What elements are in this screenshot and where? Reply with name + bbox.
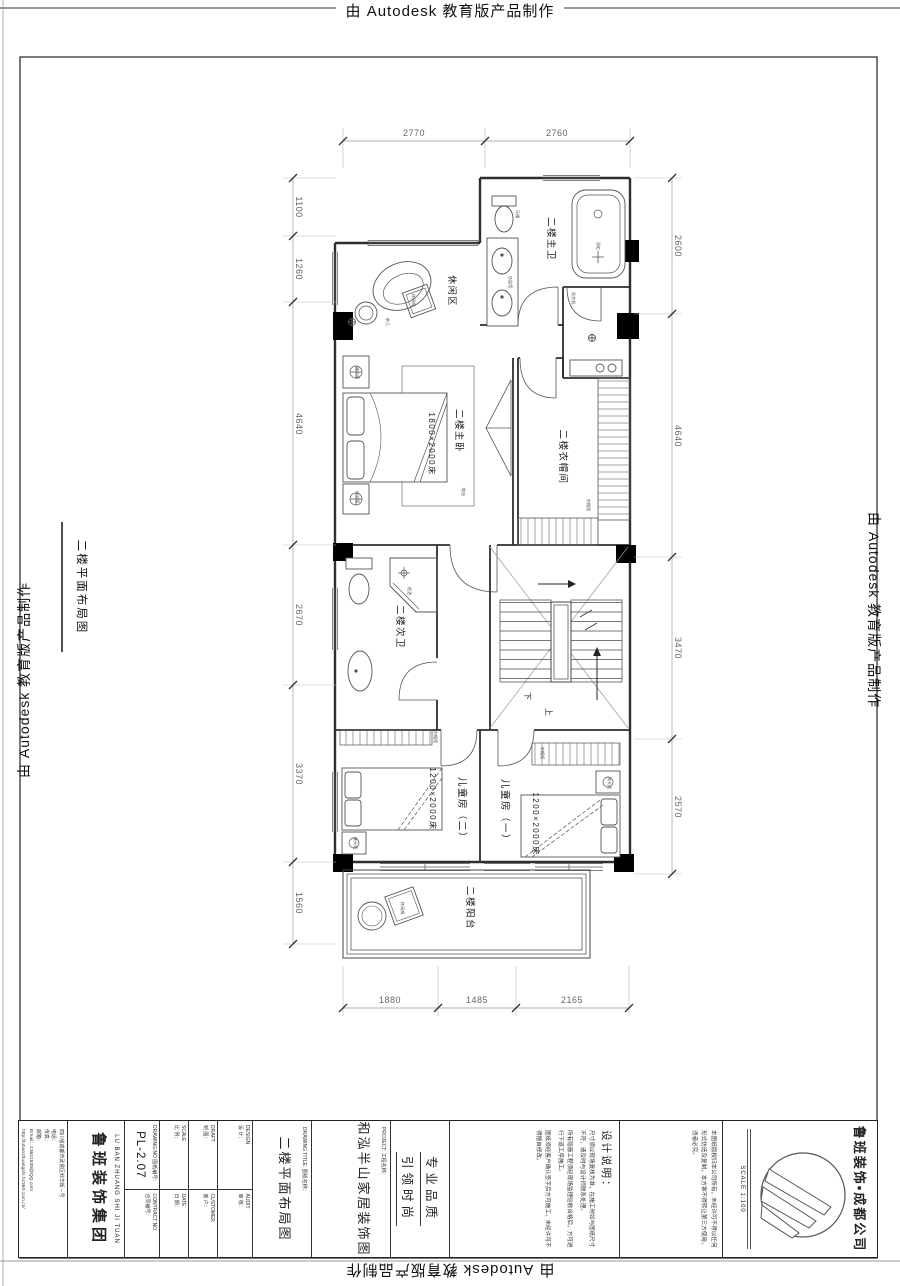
svg-text:床头柜: 床头柜	[354, 491, 361, 504]
draft-cell: DRAFT制 图：	[189, 1121, 217, 1190]
second-bath-fixtures	[346, 558, 437, 691]
svg-text:3470: 3470	[673, 637, 683, 659]
branch-name: 鲁班装饰•成都公司	[851, 1121, 870, 1257]
slogan-line-2: 引领时尚	[396, 1152, 418, 1226]
svg-text:洗衣机: 洗衣机	[570, 292, 577, 305]
svg-text:1880: 1880	[379, 995, 401, 1005]
svg-text:1485: 1485	[466, 995, 488, 1005]
balcony-furniture	[358, 887, 423, 930]
sprinkler-icon	[588, 334, 596, 342]
bed-size-kid1: 1200×2000床	[531, 792, 541, 855]
stair-down-label: 下	[523, 692, 532, 700]
svg-text:台盆柜: 台盆柜	[507, 276, 514, 289]
drawing-number: PL-2.07	[132, 1125, 148, 1185]
svg-text:1260: 1260	[294, 258, 304, 280]
autodesk-banner-left: 由 Autodesk 教育版产品制作	[14, 582, 34, 778]
staircase: 下 上	[490, 547, 628, 728]
drawing-title-section: DRAWING TITLE: 图纸名称： 二楼平面布局图	[252, 1121, 311, 1257]
dim-chain-top: 2770 2760	[339, 128, 634, 168]
design-note: 尺寸须以现场复核为准，在施工时如与图纸尺寸不符，请及时与设计师联系处理。	[577, 1130, 595, 1248]
project-label-cn: 工程名称：	[380, 1153, 386, 1178]
copyright-section: 本图纸版权归本公司所有，未经许可不得以任何形式仿造及复制，本方案不得转让第三方使…	[619, 1121, 722, 1257]
leisure-furniture	[348, 252, 439, 326]
project-name: 和泓半山家居装饰图	[355, 1121, 374, 1257]
date-cell: DATE日 期：	[160, 1190, 188, 1258]
svg-text:衣帽柜: 衣帽柜	[585, 499, 592, 512]
design-note: 所有隐蔽工程须经现场监理验收合格后，方可进行下道工序施工。	[555, 1130, 573, 1248]
svg-text:衣帽柜: 衣帽柜	[539, 747, 546, 760]
slogan-section: 专业品质 引领时尚	[390, 1121, 449, 1257]
company-fax: 传真：	[41, 1129, 49, 1249]
stair-up-label: 上	[544, 708, 553, 716]
room-label-kids-1: 儿童房（一）	[499, 779, 511, 845]
svg-text:地台: 地台	[460, 488, 467, 496]
autodesk-banner-top: 由 Autodesk 教育版产品制作	[0, 0, 900, 21]
project-section: PROJECT: 工程名称： 和泓半山家居装饰图	[311, 1121, 390, 1257]
title-label-en: DRAWING TITLE:	[301, 1127, 307, 1167]
svg-text:4640: 4640	[294, 413, 304, 435]
svg-text:茶几: 茶几	[384, 318, 391, 327]
svg-text:床头柜: 床头柜	[606, 777, 613, 790]
design-note: 图纸须经客户确认签字后方可施工，未经许可不得擅自修改。	[533, 1130, 551, 1248]
svg-text:2670: 2670	[294, 604, 304, 626]
room-label-master-bedroom: 二楼主卧	[453, 409, 465, 453]
contact-section: 四川省成都市武侯区科华街－号 电话： 传真： 邮箱： Email：1362183…	[19, 1121, 67, 1257]
copyright-text: 本图纸版权归本公司所有，未经许可不得以任何形式仿造及复制，本方案不得转让第三方使…	[689, 1130, 718, 1248]
page-frame	[0, 0, 900, 1286]
room-label-kids-2: 儿童房（二）	[456, 777, 468, 843]
svg-text:2600: 2600	[673, 235, 683, 257]
svg-text:休闲椅: 休闲椅	[410, 294, 417, 307]
title-label-cn: 图纸名称：	[301, 1169, 307, 1194]
svg-text:1560: 1560	[294, 892, 304, 914]
dim-chain-left: 1100 1260 4640 2670 3370 1560	[283, 174, 336, 948]
luban-logo	[751, 1121, 851, 1257]
svg-text:床头柜: 床头柜	[354, 367, 361, 380]
room-label-balcony: 二楼阳台	[464, 886, 476, 930]
drawing-title: 二楼平面布局图	[276, 1121, 295, 1257]
svg-text:2760: 2760	[546, 128, 568, 138]
floor-plan-sheet: 二楼平面布局图	[0, 0, 900, 1286]
company-website: http://lubanzhuangshi.hc360.com.cn/	[19, 1129, 26, 1249]
project-label-en: PROJECT:	[380, 1127, 386, 1151]
room-label-second-bath: 二楼次卫	[394, 605, 406, 649]
drawing-no-cell: DRAWING NO 图纸编号： PL-2.07	[124, 1121, 159, 1190]
bed-size-kid2: 1200×2000床	[428, 767, 438, 830]
dim-chain-bottom: 1880 1485 2165	[339, 966, 633, 1016]
company-section: LU BAN ZHUANG SHI JI TUAN 鲁班装饰集团	[67, 1121, 124, 1257]
customer-cell: CUSTOMER客 户：	[189, 1190, 217, 1258]
bed-size-master: 1800×2000床	[427, 412, 437, 475]
contract-no-cell: CONTRACT NO合同编号：	[124, 1190, 159, 1258]
svg-text:浴缸: 浴缸	[595, 242, 602, 251]
sheet-subtitle: 二楼平面布局图	[62, 522, 89, 652]
svg-text:1100: 1100	[294, 196, 304, 217]
svg-text:床头柜: 床头柜	[352, 837, 359, 850]
scale-value: SCALE 1:100	[739, 1121, 745, 1257]
sheet-subtitle-label: 二楼平面布局图	[75, 540, 89, 635]
room-label-leisure: 休闲区	[447, 275, 458, 307]
svg-text:花洒: 花洒	[406, 587, 413, 595]
company-name-en: LU BAN ZHUANG SHI JI TUAN	[113, 1121, 119, 1257]
autodesk-banner-right: 由 Autodesk 教育版产品制作	[864, 512, 884, 708]
slogan-line-1: 专业品质	[420, 1152, 442, 1226]
design-notes-section: 设计说明： 尺寸须以现场复核为准，在施工时如与图纸尺寸不符，请及时与设计师联系处…	[449, 1121, 619, 1257]
audit-cell: AUDIT审 核：	[218, 1190, 252, 1258]
scale-divider	[747, 1129, 751, 1249]
autodesk-banner-bottom: 由 Autodesk 教育版产品制作	[0, 1260, 900, 1281]
room-label-cloakroom: 二楼衣帽间	[557, 429, 569, 484]
scale-cell: SCALE比 例：	[160, 1121, 188, 1190]
title-block: 鲁班装饰•成都公司 SCALE 1:100 本图纸版权归本公司所有，未经许可不得…	[18, 1120, 878, 1258]
svg-text:2770: 2770	[403, 128, 425, 138]
signature-grid: DESIGN设 计： AUDIT审 核： DRAFT制 图： CUSTOMER客…	[124, 1121, 252, 1257]
logo-section: 鲁班装饰•成都公司 SCALE 1:100	[722, 1121, 877, 1257]
svg-text:休闲椅: 休闲椅	[399, 902, 406, 915]
shower-icon	[398, 567, 410, 579]
company-mail-label: 邮箱：	[34, 1129, 42, 1249]
dim-chain-right: 2600 4640 3470 2570	[634, 174, 683, 878]
svg-text:衣帽柜: 衣帽柜	[432, 731, 439, 744]
svg-text:2570: 2570	[673, 796, 683, 818]
cloakroom-fixtures	[518, 378, 630, 545]
company-tel: 电话：	[49, 1129, 57, 1249]
company-name-cn: 鲁班装饰集团	[89, 1121, 110, 1257]
room-label-master-bath: 二楼主卫	[545, 217, 557, 261]
svg-text:3370: 3370	[294, 763, 304, 785]
company-address: 四川省成都市武侯区科华街－号	[56, 1129, 64, 1249]
design-notes-title: 设计说明：	[599, 1130, 614, 1248]
company-email: Email：13621839@QQ.com	[26, 1129, 34, 1249]
svg-text:4640: 4640	[673, 425, 683, 447]
svg-text:马桶: 马桶	[514, 210, 521, 218]
svg-text:2165: 2165	[561, 995, 583, 1005]
design-cell: DESIGN设 计：	[218, 1121, 252, 1190]
